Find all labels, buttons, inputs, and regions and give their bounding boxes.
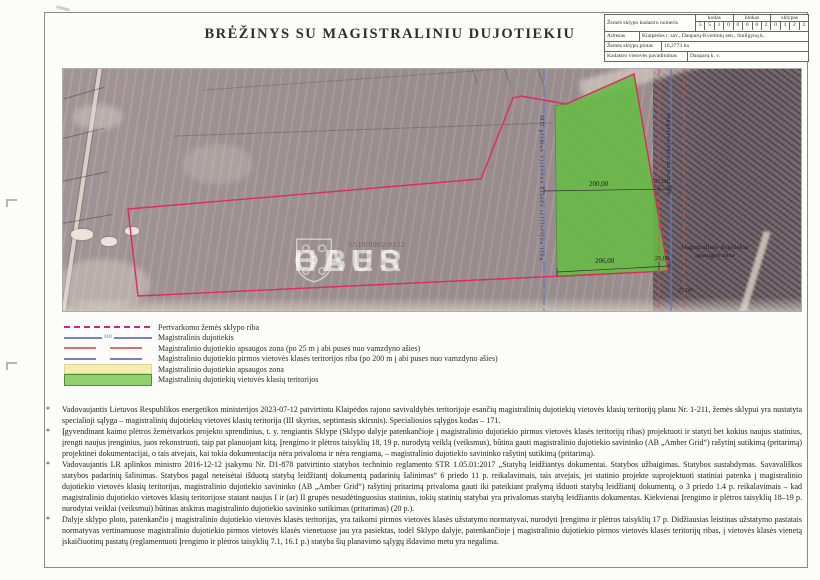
dim-label-25: 25,00 <box>678 287 692 294</box>
dim-label-25: 25,00 <box>655 255 669 262</box>
note-paragraph: * Dalyje sklypo ploto, patenkančio į mag… <box>46 514 802 547</box>
cadastre-area-value: Dauparų k. v. <box>687 52 808 61</box>
legend-label: Magistralinis dujotiekis <box>158 333 234 342</box>
legend-item-pipeline: MD Magistralinis dujotiekis <box>64 333 498 344</box>
note-bullet: * <box>46 404 62 426</box>
legend-item-first-class-boundary: Magistralinio dujotiekio pirmos vietovės… <box>64 354 498 365</box>
plot-digit: 1 <box>780 22 789 30</box>
legend-label: Pertvarkomo žemės sklypo riba <box>158 323 259 332</box>
code-digit: 5 <box>696 22 704 30</box>
plot-digit: 2 <box>789 22 798 30</box>
fold-mark <box>6 199 17 207</box>
note-text: Vadovaujantis LR aplinkos ministro 2016-… <box>62 459 802 514</box>
cadastre-number-label: Žemės sklypo kadastro numeris <box>605 15 695 31</box>
area-value: 16,2773 ha <box>661 42 808 51</box>
fold-mark <box>6 362 17 370</box>
note-paragraph: * Vadovaujantis LR aplinkos ministro 201… <box>46 459 802 514</box>
page-title: BRĖŽINYS SU MAGISTRALINIU DUJOTIEKIU <box>200 26 580 43</box>
green-area-swatch <box>64 374 152 386</box>
md-mark-label: MD <box>102 335 114 340</box>
col-header-kodas: kodas <box>696 15 733 22</box>
drawing-sheet: BRĖŽINYS SU MAGISTRALINIU DUJOTIEKIU Žem… <box>0 0 820 580</box>
note-bullet: * <box>46 459 62 514</box>
protection-zone-label-2: apsaugos zona <box>695 253 735 259</box>
legend-label: Magistralinių dujotiekių vietovės klasių… <box>158 375 318 384</box>
legend-item-territory-fill: Magistralinių dujotiekių vietovės klasių… <box>64 375 498 386</box>
dim-label-206: 206,00 <box>595 257 615 265</box>
note-text: Vadovaujantis Lietuvos Respublikos energ… <box>62 404 802 426</box>
note-bullet: * <box>46 514 62 547</box>
yellow-area-swatch <box>64 364 152 374</box>
plot-digit: 0 <box>770 22 779 30</box>
cadastre-area-label: Kadastro vietovės pavadinimas <box>605 52 687 61</box>
legend-label: Magistralinio dujotiekio apsaugos zona <box>158 365 284 374</box>
legend: Pertvarkomo žemės sklypo riba MD Magistr… <box>64 322 498 385</box>
dashed-red-line-icon <box>64 347 150 349</box>
dim-label-200: 200,00 <box>589 180 609 188</box>
note-paragraph: * Vadovaujantis Lietuvos Respublikos ene… <box>46 404 802 426</box>
dashed-blue-line-icon <box>64 358 150 360</box>
code-digit: 5 <box>704 22 713 30</box>
col-header-blokas: blokas <box>733 15 771 22</box>
block-digit: 0 <box>733 22 742 30</box>
block-digit: 2 <box>761 22 770 30</box>
plot-digit: 2 <box>799 22 808 30</box>
scan-artifact <box>56 5 70 11</box>
notes-section: * Vadovaujantis Lietuvos Respublikos ene… <box>46 404 802 547</box>
block-digit: 0 <box>752 22 761 30</box>
blue-line-icon <box>64 337 102 339</box>
code-digit: 1 <box>714 22 723 30</box>
note-text: Dalyje sklypo ploto, patenkančio į magis… <box>62 514 802 547</box>
cadastre-number-cells: kodas blokas sklypas 5 5 1 0 0 0 0 2 0 1… <box>695 15 808 31</box>
address-value: Klaipėdos r. sav., Dauparų-Kvietinių sen… <box>639 32 808 41</box>
pipeline-label: Magistralinis dujotiekis <box>665 113 672 196</box>
aerial-map: OBER HAUS <box>62 68 802 312</box>
block-digit: 0 <box>742 22 751 30</box>
legend-label: Magistralinio dujotiekio pirmos vietovės… <box>158 354 498 363</box>
code-digit: 0 <box>723 22 732 30</box>
first-class-boundary-label: MD pirmos vietovės klasės teritorijos ri… <box>538 115 545 261</box>
dashed-magenta-line-icon <box>64 326 150 328</box>
note-paragraph: * Įgyvendinant kaimo plėtros žemėtvarkos… <box>46 426 802 459</box>
legend-item-plot-boundary: Pertvarkomo žemės sklypo riba <box>64 322 498 333</box>
note-text: Įgyvendinant kaimo plėtros žemėtvarkos p… <box>62 426 802 459</box>
protection-zone-label-1: Magistralinio dujotiekio <box>681 245 749 251</box>
parcel-number-label: 5510/0002:0122 <box>349 240 405 249</box>
legend-label: Magistralinio dujotiekio apsaugos zona (… <box>158 344 420 353</box>
address-label: Adresas <box>605 32 639 41</box>
legend-item-protection-zone-line: Magistralinio dujotiekio apsaugos zona (… <box>64 343 498 354</box>
area-label: Žemės sklypo plotas <box>605 42 661 51</box>
map-vector-overlay: 200,00 25,00 206,00 25,00 25,00 5510/000… <box>63 69 801 311</box>
note-bullet: * <box>46 426 62 459</box>
cadastre-info-table: Žemės sklypo kadastro numeris kodas blok… <box>604 14 809 62</box>
col-header-sklypas: sklypas <box>770 15 808 22</box>
blue-line-icon <box>114 337 152 339</box>
